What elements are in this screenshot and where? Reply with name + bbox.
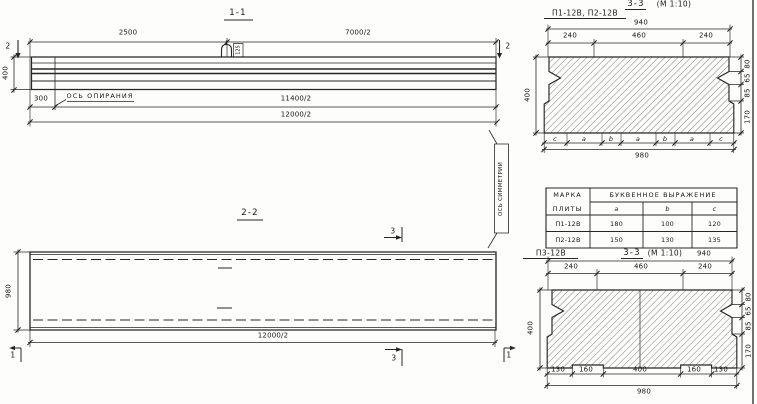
table-row2-c: 135 [708, 237, 721, 244]
letter-b-2: b [663, 136, 667, 143]
drawing-sheet: 1-1 2500 7000/2 2 2 400 125 300 ОСЬ ОПИР… [0, 0, 757, 404]
dim-400-left: 400 [3, 66, 10, 80]
support-axis-label: ОСЬ ОПИРАНИЯ [67, 93, 134, 100]
dim-65-b: 65 [745, 306, 752, 315]
table-col-c: c [713, 205, 717, 212]
cut-marker-1-left: 1 [10, 351, 15, 359]
dim-65: 65 [745, 73, 752, 82]
table-row2-mark: П2-12В [555, 237, 580, 244]
dim-400-bottom: 400 [633, 367, 647, 374]
letter-c-2: c [719, 136, 723, 143]
section-3-3-scale-bottom: (М 1:10) [648, 249, 683, 257]
cut-marker-1-right: 1 [506, 351, 511, 359]
table-header-expr: БУКВЕННОЕ ВЫРАЖЕНИЕ [609, 192, 716, 199]
dim-300: 300 [34, 96, 48, 103]
table-row2-a: 150 [610, 237, 623, 244]
letter-a-1: a [582, 136, 586, 143]
letter-a-3: a [690, 136, 694, 143]
dim-400-section: 400 [524, 88, 531, 102]
table-col-b: b [665, 205, 669, 212]
dim-12000-2-bottom: 12000/2 [258, 332, 288, 339]
letter-c-1: c [553, 136, 557, 143]
table-row1-mark: П1-12В [555, 220, 580, 227]
dim-940-bottom: 940 [697, 251, 711, 258]
table-row2-b: 130 [661, 237, 674, 244]
dim-240-right-b: 240 [698, 263, 712, 270]
section-2-2-title: 2-2 [241, 209, 258, 218]
symmetry-axis-label: ОСЬ СИММЕТРИИ [499, 161, 505, 215]
table-header-mark-2: ПЛИТЫ [553, 205, 583, 212]
dim-940-top: 940 [634, 19, 648, 26]
dim-80-b: 80 [745, 292, 752, 301]
dim-980-section: 980 [635, 152, 649, 159]
letter-b-1: b [609, 136, 613, 143]
section-1-1-title: 1-1 [229, 9, 246, 18]
dim-460: 460 [632, 33, 646, 40]
table-row1-a: 180 [610, 220, 623, 227]
dim-130-1: 130 [551, 367, 565, 374]
cut-marker-3-bottom: 3 [391, 354, 396, 362]
dim-7000-2: 7000/2 [345, 30, 371, 37]
cut-marker-2-right: 2 [505, 42, 510, 50]
dim-85-b: 85 [745, 321, 752, 330]
dim-240-left: 240 [563, 33, 577, 40]
letter-a-2: a [636, 136, 640, 143]
dim-240-right: 240 [699, 33, 713, 40]
table-col-a: a [614, 205, 618, 212]
dim-12000-2-top: 12000/2 [281, 111, 311, 118]
cut-marker-3-top: 3 [390, 227, 395, 235]
dim-980-bottom: 980 [637, 389, 651, 396]
dim-130-2: 130 [714, 367, 728, 374]
section-3-3-title-top: 3-3 [627, 0, 644, 8]
table-row1-c: 120 [708, 220, 721, 227]
dim-240-left-b: 240 [564, 263, 578, 270]
dim-980-left: 980 [6, 284, 13, 298]
plate-mark-p3-label: П3-12В [536, 249, 566, 257]
dim-170-b: 170 [745, 344, 752, 358]
dim-11400-2: 11400/2 [281, 96, 311, 103]
section-3-3-title-bottom: 3-3 [623, 249, 640, 258]
plate-marks-label: П1-12В, П2-12В [552, 9, 618, 17]
section-3-3-scale-top: (М 1:10) [657, 0, 692, 8]
dim-2500: 2500 [119, 30, 138, 37]
dim-170: 170 [745, 110, 752, 124]
dim-160-2: 160 [687, 367, 701, 374]
dim-85: 85 [745, 88, 752, 97]
loop-tag: 125 [236, 45, 241, 55]
dim-160-1: 160 [579, 367, 593, 374]
dim-460-b: 460 [634, 263, 648, 270]
dim-400-section-b: 400 [528, 321, 535, 335]
dim-80: 80 [745, 59, 752, 68]
table-row1-b: 100 [661, 220, 674, 227]
drawing-linework [0, 0, 757, 404]
table-header-mark-1: МАРКА [553, 192, 582, 199]
cut-marker-2-left: 2 [5, 42, 10, 50]
